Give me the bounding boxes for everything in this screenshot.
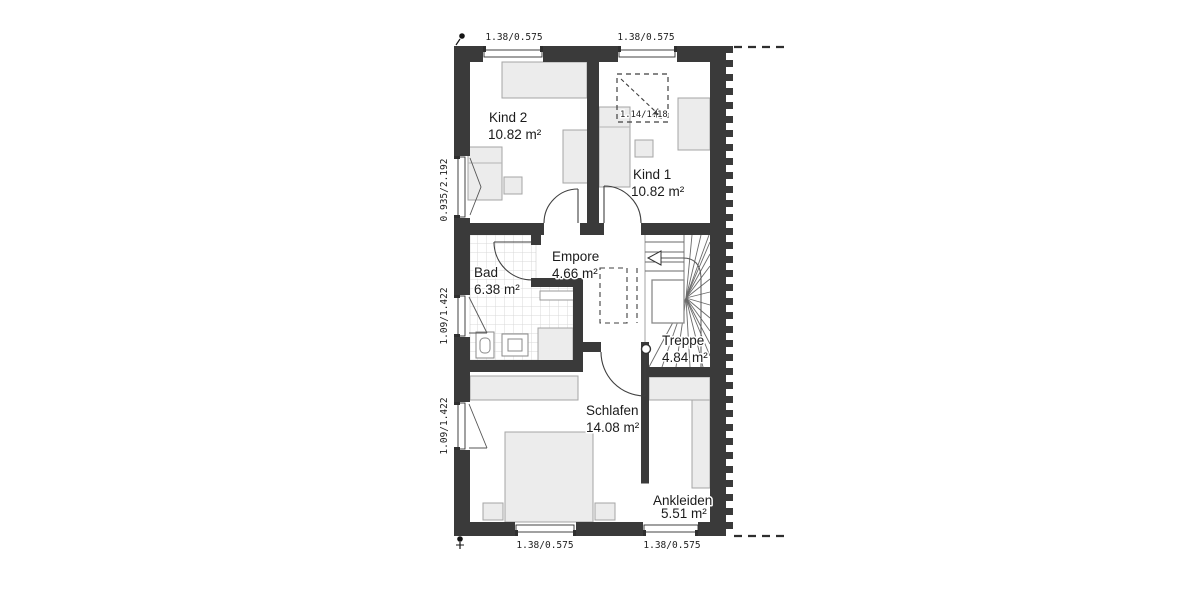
dim-bottom-left-window: 1.38/0.575 bbox=[516, 540, 573, 551]
wall-bad-south bbox=[466, 360, 583, 372]
nightstand-kind2 bbox=[504, 177, 522, 194]
door-post bbox=[642, 345, 651, 354]
dim-skylight: 1.14/1.18 bbox=[620, 110, 668, 120]
wall-mid-2 bbox=[580, 223, 604, 235]
window-bottom-right bbox=[643, 525, 698, 536]
dim-left-lower-window: 1.09/1.422 bbox=[439, 397, 450, 454]
label-empore-area: 4.66 m² bbox=[552, 266, 598, 281]
wall-top-2 bbox=[543, 46, 618, 62]
desk-kind2 bbox=[563, 130, 588, 183]
label-treppe-area: 4.84 m² bbox=[662, 350, 708, 365]
wall-left-1 bbox=[454, 46, 470, 156]
wall-mid-3 bbox=[641, 223, 710, 235]
radiator bbox=[540, 291, 578, 300]
label-kind2-name: Kind 2 bbox=[489, 110, 527, 125]
dim-top-right-window: 1.38/0.575 bbox=[617, 32, 674, 43]
wall-divider-kind-rooms bbox=[587, 62, 599, 223]
dim-top-left-window: 1.38/0.575 bbox=[485, 32, 542, 43]
wall-bottom-2 bbox=[576, 522, 643, 536]
window-left-lower bbox=[454, 402, 487, 450]
wardrobe-kind1 bbox=[678, 98, 710, 150]
dim-bottom-right-window: 1.38/0.575 bbox=[643, 540, 700, 551]
wall-bad-door-stub bbox=[531, 235, 541, 245]
label-kind1-name: Kind 1 bbox=[633, 167, 671, 182]
wall-bad-east bbox=[573, 287, 583, 372]
dim-left-middle-window: 1.09/1.422 bbox=[439, 287, 450, 344]
wall-left-4 bbox=[454, 450, 470, 536]
label-empore-name: Empore bbox=[552, 249, 599, 264]
label-bad-area: 6.38 m² bbox=[474, 282, 520, 297]
wardrobe-ankleiden-right bbox=[692, 400, 710, 488]
wardrobe-ankleiden-top bbox=[649, 377, 710, 400]
window-bottom-left bbox=[515, 525, 576, 536]
label-kind1-area: 10.82 m² bbox=[631, 184, 685, 199]
marker-pin-bottom-icon bbox=[456, 536, 464, 549]
label-treppe-name: Treppe bbox=[662, 333, 704, 348]
toilet-bowl bbox=[480, 338, 490, 353]
wall-stair-south bbox=[641, 367, 710, 377]
wall-right-party bbox=[710, 46, 726, 536]
nightstand-schlafen-left bbox=[483, 503, 503, 520]
marker-pin-top-icon bbox=[456, 33, 465, 45]
bed-kind2 bbox=[468, 147, 502, 200]
sink-basin bbox=[508, 339, 522, 351]
label-bad-name: Bad bbox=[474, 265, 498, 280]
wall-left-2 bbox=[454, 218, 470, 295]
window-top-left bbox=[483, 46, 543, 57]
door-schlafen bbox=[601, 352, 645, 396]
wardrobe-schlafen bbox=[470, 376, 578, 400]
dim-left-upper-window: 0.935/2.192 bbox=[439, 159, 450, 222]
bed-schlafen bbox=[505, 432, 593, 522]
label-schlafen-name: Schlafen bbox=[586, 403, 639, 418]
window-top-right bbox=[618, 46, 677, 57]
stair-well-void bbox=[652, 280, 684, 323]
floor-plan-drawing: Kind 2 10.82 m² Kind 1 10.82 m² Bad 6.38… bbox=[0, 0, 1200, 600]
wardrobe-kind2 bbox=[502, 62, 587, 98]
label-ankleiden-area: 5.51 m² bbox=[661, 506, 707, 521]
empore-void-outline bbox=[600, 268, 627, 323]
label-schlafen-area: 14.08 m² bbox=[586, 420, 640, 435]
floor-plan-page: Kind 2 10.82 m² Kind 1 10.82 m² Bad 6.38… bbox=[0, 0, 1200, 600]
label-kind2-area: 10.82 m² bbox=[488, 127, 542, 142]
door-kind2 bbox=[544, 189, 578, 223]
nightstand-schlafen-right bbox=[595, 503, 615, 520]
nightstand-kind1 bbox=[635, 140, 653, 157]
wall-empore-south bbox=[573, 342, 601, 352]
stair-direction-arrow-icon bbox=[648, 251, 661, 265]
party-wall-hatch bbox=[726, 46, 733, 536]
wall-mid-1 bbox=[470, 223, 544, 235]
